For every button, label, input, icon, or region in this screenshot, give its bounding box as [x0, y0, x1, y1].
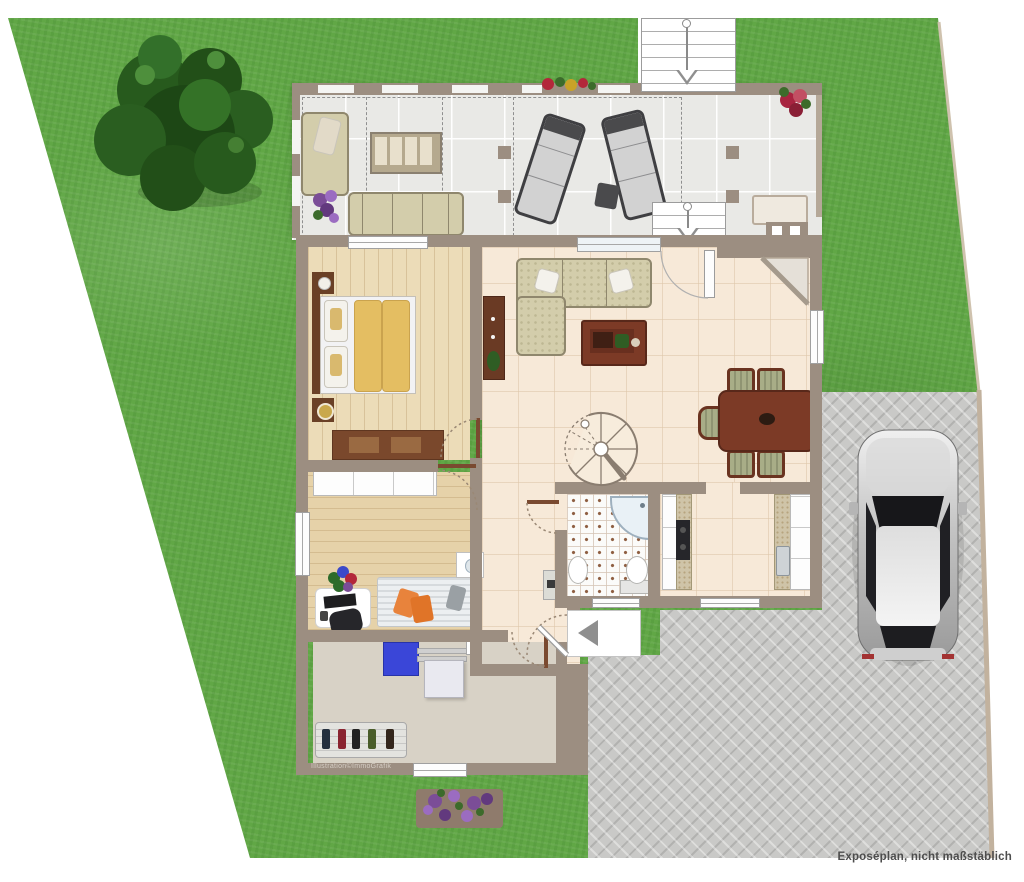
duvet [354, 300, 382, 392]
bed-cushion [330, 308, 342, 330]
figurine [631, 338, 640, 347]
shoes [338, 729, 346, 749]
entrance-arrow [578, 620, 598, 646]
kitchen-cabinets-right [790, 494, 812, 590]
books [593, 332, 613, 348]
terrace-railing [318, 85, 354, 93]
terrace-edge-right [816, 95, 822, 217]
dresser-panel [391, 437, 421, 453]
terrace-parapet-left [292, 95, 300, 238]
wall-bath-right [648, 482, 660, 596]
outdoor-sofa [348, 192, 464, 236]
stairs-walkline-start [683, 202, 692, 211]
lounger-side-table [594, 182, 620, 209]
gray-cushion [445, 584, 466, 611]
wall-utility-east [556, 664, 588, 763]
kitchen-sink [776, 546, 790, 576]
wall-kitchen-top [740, 482, 810, 494]
outdoor-table [370, 132, 442, 174]
duvet [382, 300, 410, 392]
sofa-divider [448, 194, 449, 234]
wall-bath-top [567, 482, 648, 494]
door-leaf-living [704, 250, 715, 298]
grill-table [752, 195, 808, 225]
shoes [368, 729, 376, 749]
office-window [295, 512, 310, 576]
pergola-post [726, 146, 739, 159]
corner-sofa-side [516, 296, 566, 356]
bedroom-window [348, 236, 428, 249]
kitchen-window [700, 598, 760, 608]
outdoor-table-cushions [375, 137, 433, 165]
dining-table [718, 390, 816, 452]
wall-east [810, 247, 822, 608]
pergola-post [360, 83, 372, 95]
shower-head [640, 503, 645, 508]
bathroom-window [592, 598, 640, 608]
door-leaf-office [438, 464, 476, 468]
terrace-railing [292, 120, 300, 154]
terrace-railing [382, 85, 418, 93]
sofa-divider [362, 194, 363, 234]
cabinet-fixture [547, 580, 555, 588]
terrace-railing [522, 85, 542, 93]
shoes [352, 729, 360, 749]
bed-headboard [312, 294, 320, 394]
pergola-post [507, 83, 519, 95]
pergola-post [436, 83, 448, 95]
wall-bedroom-office [308, 460, 438, 472]
bedside-lamp [317, 403, 334, 420]
wall-bedroom-living [470, 247, 482, 420]
wall-utility-east-upper [556, 642, 567, 664]
blue-table [383, 642, 419, 676]
toilet [626, 556, 648, 584]
orange-cushion [410, 594, 434, 623]
bench-rail [417, 648, 467, 654]
terrace-railing [452, 85, 488, 93]
stairs-arrow-inner [679, 70, 695, 81]
sofa-divider [606, 260, 607, 306]
wall-stub [470, 630, 482, 676]
knob [491, 335, 495, 339]
shoes [386, 729, 394, 749]
door-leaf-bedroom [476, 418, 480, 458]
utility-window [413, 763, 467, 777]
floor-plan-scene: Illustration©ImmoGrafik Exposéplan, nich… [0, 0, 1024, 882]
wall-west [296, 247, 308, 775]
wall-kitchen-top [660, 482, 706, 494]
shoes [322, 729, 330, 749]
coffee-table [581, 320, 647, 366]
wall-office-hall [470, 472, 482, 630]
dresser-panel [349, 437, 379, 453]
wall-bath-left-stub [555, 482, 567, 494]
sofa-divider [422, 194, 423, 234]
dining-window [810, 310, 824, 364]
terrace-glass-door [577, 237, 661, 252]
cooktop [676, 520, 690, 560]
bedside-lamp [318, 277, 331, 290]
dining-chair [727, 450, 755, 478]
washbasin [568, 556, 588, 584]
daybed-rug [377, 577, 479, 627]
wall-bath-left [555, 530, 567, 596]
sideboard [483, 296, 505, 380]
pergola-post [726, 190, 739, 203]
pergola-line [513, 97, 514, 236]
laptop [323, 593, 356, 608]
dining-chair [757, 450, 785, 478]
shoe-rack [315, 722, 407, 758]
wall-north-thick [717, 247, 822, 258]
footer-note: Exposéplan, nicht maßstäblich [837, 851, 1012, 863]
bed-cushion [330, 354, 342, 376]
knob [491, 317, 495, 321]
pergola-post [498, 190, 511, 203]
table-bowl [759, 413, 775, 425]
stairs-walkline-start [682, 19, 691, 28]
door-leaf-bathroom [527, 500, 559, 504]
burner [680, 544, 686, 550]
bedroom-dresser [332, 430, 444, 460]
terrace-railing [292, 176, 300, 206]
burner [680, 527, 686, 533]
sideboard-plant [487, 351, 500, 371]
terrace-railing [598, 85, 630, 93]
table-plant [615, 334, 629, 348]
phone [320, 611, 328, 621]
lounger-headrest [603, 112, 643, 135]
side-table [424, 660, 464, 698]
pergola-post [498, 146, 511, 159]
door-leaf-utility [544, 632, 548, 668]
sofa-divider [392, 194, 393, 234]
watermark: Illustration©ImmoGrafik [311, 763, 391, 770]
